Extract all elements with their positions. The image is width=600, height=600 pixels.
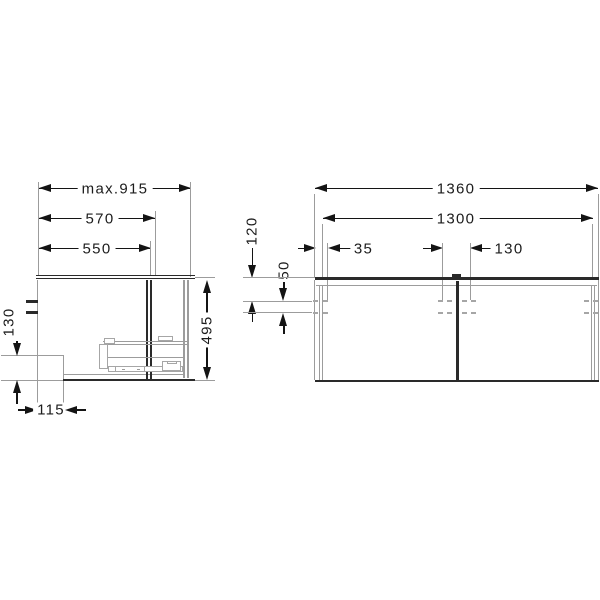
- dimension-arrow: [279, 288, 287, 301]
- dim-label-1360: 1360: [433, 182, 480, 197]
- dimension-arrow: [431, 244, 443, 252]
- dim-label-1300: 1300: [433, 212, 480, 227]
- cabinet-side-panel-line: [598, 280, 599, 380]
- top-center-tab: [452, 274, 461, 279]
- dimension-arrow: [248, 265, 256, 278]
- extension-line: [592, 224, 593, 277]
- extension-line: [243, 277, 315, 278]
- mounting-hole-mark: [462, 300, 467, 302]
- mounting-hole-mark: [313, 312, 318, 314]
- mounting-hole-mark: [447, 300, 452, 302]
- extension-line: [598, 194, 599, 277]
- mounting-hole-mark: [593, 312, 598, 314]
- mounting-hole-mark: [593, 300, 598, 302]
- front-view: 1360 1300 35 130 120 50: [0, 0, 600, 600]
- dimension-arrow: [586, 184, 598, 192]
- extension-line: [243, 312, 312, 313]
- dim-label-130-front: 130: [491, 241, 528, 256]
- mounting-hole-mark: [438, 312, 443, 314]
- extension-line: [322, 224, 323, 277]
- dimension-arrow: [581, 214, 593, 222]
- extension-line: [314, 194, 315, 277]
- mounting-hole-mark: [584, 300, 589, 302]
- extension-line: [470, 243, 471, 300]
- dim-label-120: 120: [244, 214, 259, 249]
- mounting-hole-mark: [471, 312, 476, 314]
- extension-line: [243, 301, 312, 302]
- mounting-hole-mark: [584, 312, 589, 314]
- dimension-line: [252, 248, 253, 265]
- cabinet-side-panel-line: [319, 285, 320, 380]
- mounting-hole-mark: [313, 300, 318, 302]
- extension-line: [442, 243, 443, 300]
- dimension-arrow: [470, 244, 482, 252]
- dim-label-50: 50: [277, 257, 292, 282]
- extension-line: [327, 243, 328, 300]
- drawer-divider: [456, 281, 460, 381]
- dimension-arrow: [328, 244, 340, 252]
- mounting-hole-mark: [323, 300, 328, 302]
- mounting-hole-mark: [471, 300, 476, 302]
- cabinet-side-panel-line: [314, 280, 315, 380]
- dimension-arrow: [323, 214, 335, 222]
- mounting-hole-mark: [462, 312, 467, 314]
- mounting-hole-mark: [323, 312, 328, 314]
- dimension-arrow: [315, 184, 327, 192]
- mounting-hole-mark: [447, 312, 452, 314]
- dimension-arrow: [279, 313, 287, 326]
- mounting-hole-mark: [438, 300, 443, 302]
- dimension-line: [252, 314, 253, 322]
- dim-label-35: 35: [350, 241, 377, 256]
- technical-drawing-canvas: max.915 570 550: [0, 0, 600, 600]
- dimension-line: [283, 326, 284, 334]
